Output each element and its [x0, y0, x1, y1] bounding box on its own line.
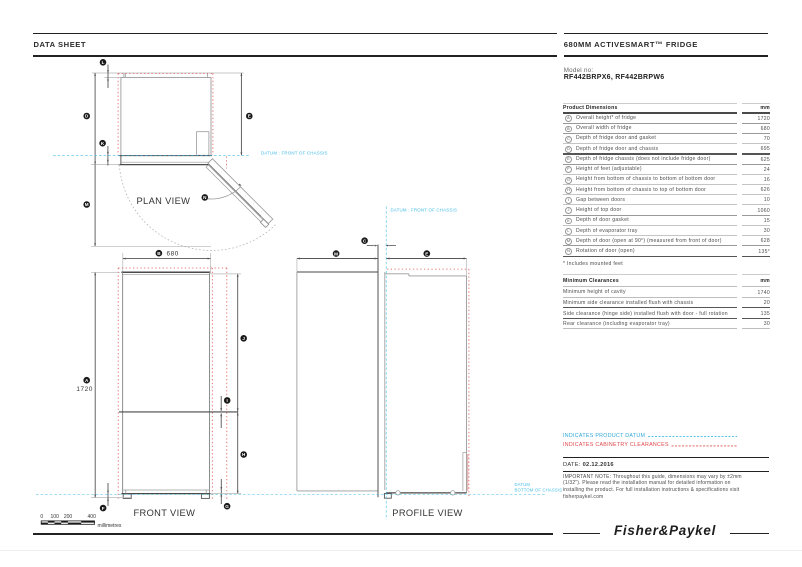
svg-text:PROFILE VIEW: PROFILE VIEW: [392, 508, 462, 518]
svg-text:I: I: [227, 398, 228, 403]
svg-text:E: E: [425, 251, 428, 256]
svg-text:FRONT VIEW: FRONT VIEW: [134, 508, 196, 518]
svg-text:millimetres: millimetres: [98, 523, 122, 529]
svg-text:F: F: [102, 506, 105, 511]
svg-text:M: M: [334, 251, 338, 256]
svg-text:BOTTOM OF CHASSIS: BOTTOM OF CHASSIS: [515, 488, 563, 493]
svg-text:100: 100: [51, 514, 60, 520]
svg-text:M: M: [85, 202, 89, 207]
svg-text:J: J: [242, 336, 245, 341]
svg-text:680: 680: [167, 251, 179, 258]
svg-text:PLAN VIEW: PLAN VIEW: [137, 196, 191, 206]
svg-text:0: 0: [40, 514, 43, 520]
svg-text:DATUM: DATUM: [515, 482, 531, 487]
svg-text:200: 200: [64, 514, 73, 520]
svg-text:E: E: [248, 114, 251, 119]
svg-text:DATUM : FRONT OF CHASSIS: DATUM : FRONT OF CHASSIS: [261, 150, 328, 155]
svg-text:L: L: [102, 60, 105, 65]
svg-text:G: G: [225, 504, 229, 509]
svg-text:1720: 1720: [76, 386, 93, 393]
svg-text:400: 400: [88, 514, 97, 520]
svg-text:DATUM : FRONT OF CHASSIS: DATUM : FRONT OF CHASSIS: [391, 208, 458, 213]
